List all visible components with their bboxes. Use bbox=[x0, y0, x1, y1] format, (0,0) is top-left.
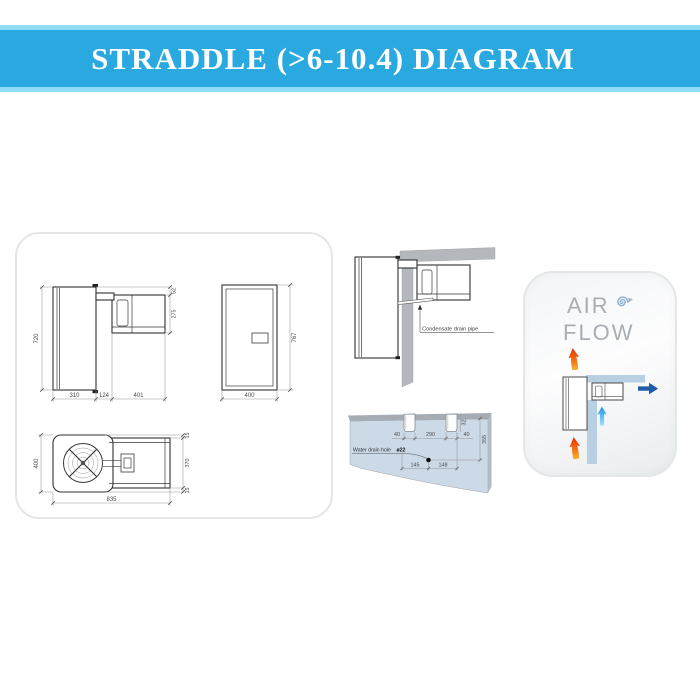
wall bbox=[402, 261, 413, 387]
dim-label: 145 bbox=[411, 462, 420, 468]
condensate-callout: Condensate drain pipe bbox=[418, 305, 494, 333]
dim-label: 15 bbox=[185, 433, 191, 439]
airflow-word-flow: FLOW bbox=[563, 320, 635, 345]
dim-label: 370 bbox=[185, 459, 191, 468]
condensate-label: Condensate drain pipe bbox=[422, 326, 478, 332]
dim-label: 400 bbox=[34, 458, 40, 469]
cold-air-supply-arrow bbox=[638, 383, 658, 395]
drain-hole-size: ø22 bbox=[397, 448, 406, 454]
hot-air-out-arrow bbox=[567, 347, 580, 370]
cold-air-return-arrow bbox=[597, 407, 606, 426]
dim-label: 310 bbox=[69, 393, 80, 399]
dim-label: 835 bbox=[106, 497, 117, 503]
side-view: 720 310 124 401 52 275 bbox=[34, 284, 178, 402]
dim-label: 355 bbox=[482, 435, 488, 444]
pointer-arrow-icon bbox=[418, 305, 422, 310]
dim-label: 401 bbox=[133, 393, 144, 399]
dim-label: 767 bbox=[292, 332, 298, 343]
dim-label: 290 bbox=[426, 432, 435, 438]
ceiling-bar bbox=[586, 375, 645, 383]
drain-label: Water drain hole bbox=[353, 448, 391, 454]
airflow-word-air: AIR bbox=[567, 293, 610, 318]
water-drain-diagram: 40 290 40 32 355 145 148 Water drain hol… bbox=[340, 402, 502, 502]
nameplate bbox=[252, 333, 268, 343]
dim-label: 40 bbox=[464, 432, 470, 438]
page-title: STRADDLE (>6-10.4) DIAGRAM bbox=[91, 41, 609, 77]
condensate-drain-diagram: Condensate drain pipe bbox=[345, 235, 500, 403]
dimension-views-drawing: 720 310 124 401 52 275 bbox=[17, 234, 331, 517]
page: STRADDLE (>6-10.4) DIAGRAM 720 bbox=[0, 0, 700, 700]
drain-hole-dot bbox=[426, 458, 431, 463]
dim-label: 275 bbox=[172, 310, 178, 319]
dim-label: 720 bbox=[34, 333, 40, 344]
dim-label: 32 bbox=[462, 420, 468, 426]
warm-air-in-arrow bbox=[568, 436, 581, 459]
dim-label: 15 bbox=[185, 488, 191, 494]
wall-panel bbox=[350, 419, 488, 493]
wall-bar bbox=[587, 400, 597, 464]
air-swirl-icon bbox=[618, 297, 633, 306]
airflow-panel: AIR FLOW bbox=[523, 271, 677, 477]
dim-label: 52 bbox=[172, 288, 178, 294]
front-view: 767 400 bbox=[220, 283, 298, 402]
airflow-illustration: AIR FLOW bbox=[525, 273, 675, 475]
top-view: 400 15 370 15 835 bbox=[34, 433, 191, 507]
dim-label: 40 bbox=[394, 432, 400, 438]
title-banner: STRADDLE (>6-10.4) DIAGRAM bbox=[0, 25, 700, 92]
dim-label: 148 bbox=[439, 462, 448, 468]
dimension-views-panel: 720 310 124 401 52 275 bbox=[15, 232, 333, 519]
dim-label: 124 bbox=[99, 393, 110, 399]
dim-label: 400 bbox=[244, 393, 255, 399]
wall-side-edge bbox=[488, 413, 492, 493]
